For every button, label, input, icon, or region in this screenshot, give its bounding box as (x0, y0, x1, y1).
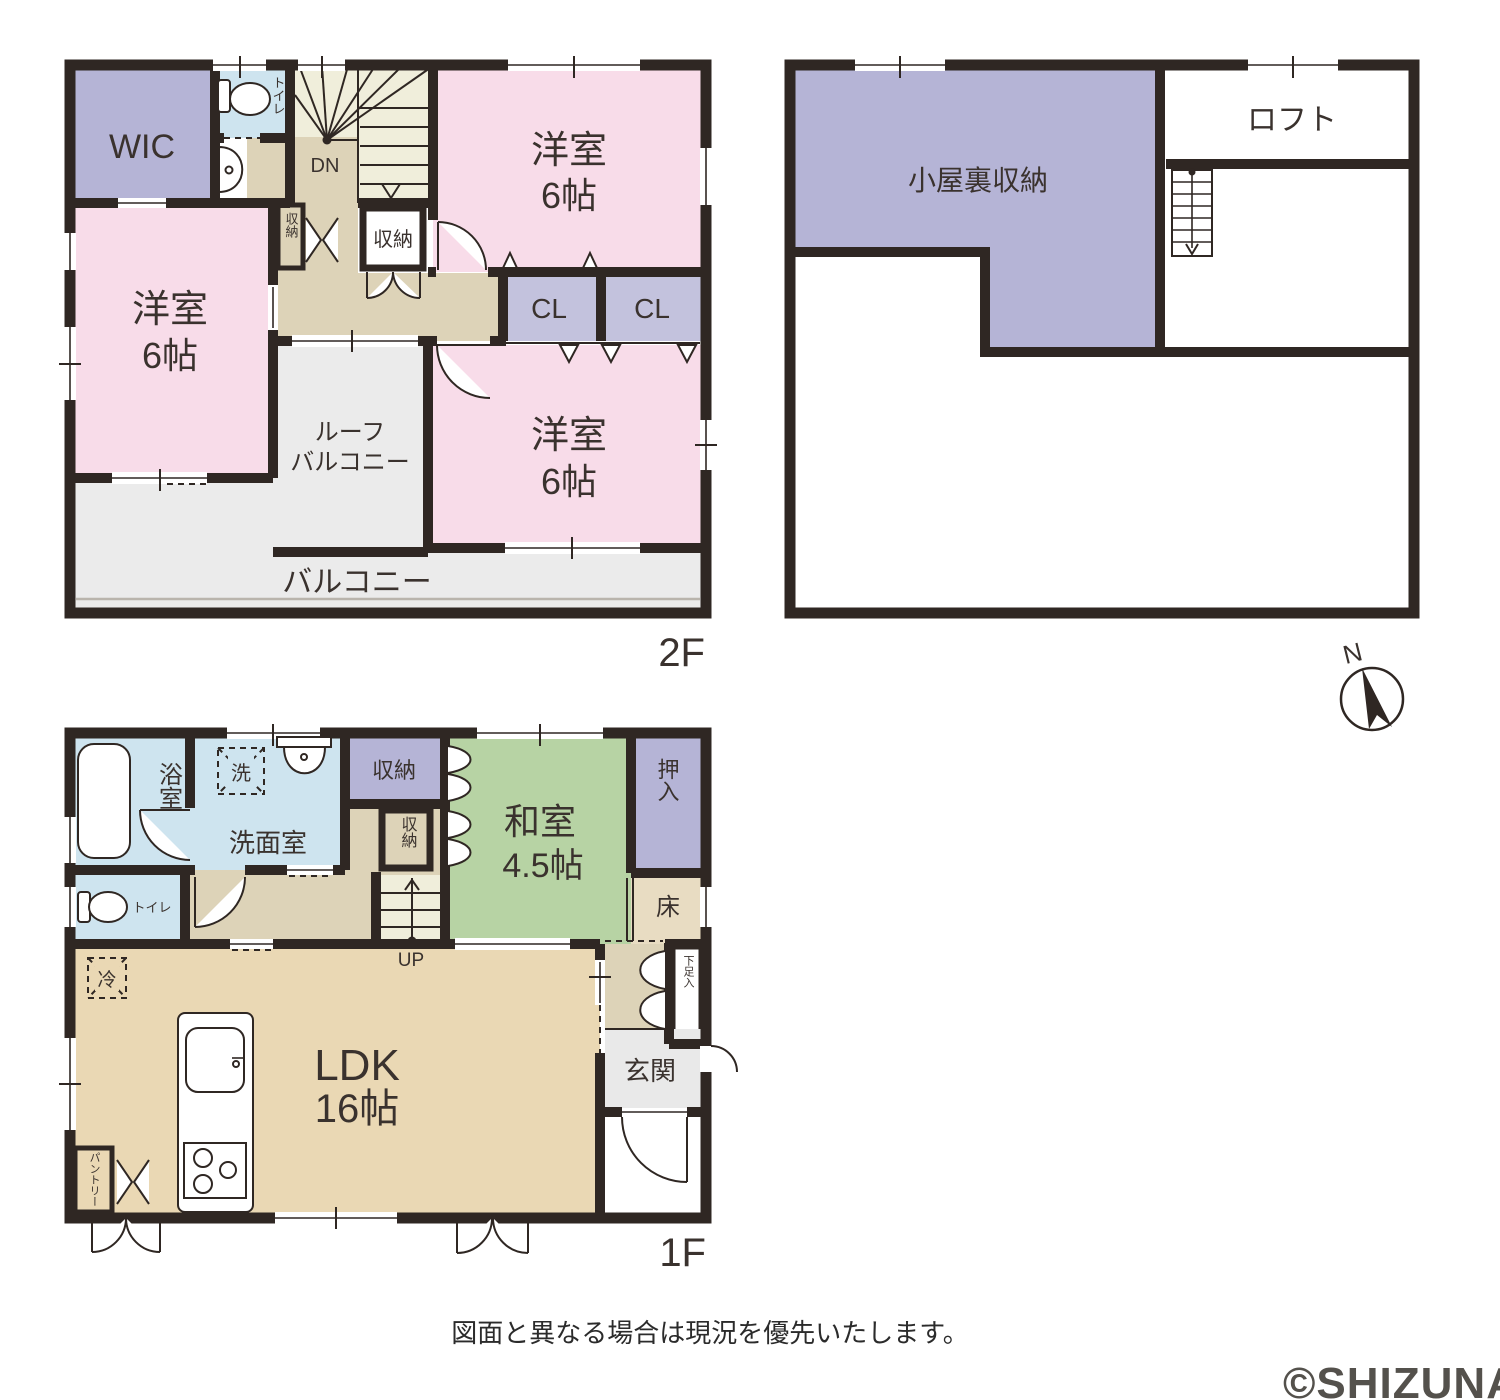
bedroom-ne-name: 洋室 (531, 130, 607, 172)
pantry-label: パントリー (88, 1152, 101, 1207)
footer-note: 図面と異なる場合は現況を優先いたします。 (451, 1318, 968, 1348)
floor1-plan: 浴室 洗 洗面室 収納 収納 トイレ UP 和室 4.5帖 押入 床 冷 LDK… (59, 724, 737, 1275)
attic-storage-label: 小屋裏収納 (908, 165, 1048, 196)
roof-balcony-line2: バルコニー (290, 449, 410, 476)
washer-label: 洗 (231, 762, 251, 785)
ldk-size: 16帖 (315, 1087, 400, 1131)
balcony-left (70, 478, 273, 613)
attic-storage-room (795, 70, 1160, 352)
bedroom-west-name: 洋室 (132, 289, 208, 331)
bath-label: 浴室 (155, 762, 182, 810)
genkan-label: 玄関 (624, 1056, 676, 1086)
compass-north-label: N (1340, 636, 1365, 670)
compass-needle (1362, 668, 1392, 729)
floor2-plan: WIC トイレ DN 収納 収納 洋室 6帖 CL CL 洋室 6帖 洋室 6帖… (59, 56, 717, 675)
closet-small-label-2f: 収納 (284, 212, 299, 239)
floorplan-page: { "colors": { "wall": "#2f2723", "room_p… (0, 0, 1500, 1400)
bedroom-ne-size: 6帖 (541, 175, 597, 216)
toilet-icon-2f (218, 80, 270, 115)
closet-label-2f: 収納 (373, 228, 413, 251)
attic-plan: 小屋裏収納 ロフト (790, 56, 1414, 613)
balcony-bottom (428, 548, 706, 613)
bedroom-se-size: 6帖 (541, 461, 597, 502)
bedroom-se-name: 洋室 (531, 415, 607, 457)
oshiire-closet (631, 733, 701, 873)
closet-lower-label: 収納 (399, 816, 418, 849)
floorplan-canvas: WIC トイレ DN 収納 収納 洋室 6帖 CL CL 洋室 6帖 洋室 6帖… (0, 0, 1500, 1400)
roof-balcony (273, 341, 428, 552)
ldk-name: LDK (314, 1041, 400, 1090)
floor1-label: 1F (659, 1231, 706, 1275)
wic-label: WIC (109, 128, 175, 166)
fridge-label: 冷 (97, 969, 116, 991)
up-label: UP (398, 950, 424, 971)
washitsu-name: 和室 (504, 801, 576, 842)
kitchen-island-icon (178, 1013, 253, 1212)
hall-1f (185, 870, 377, 944)
roof-balcony-line1: ルーフ (315, 419, 386, 446)
closet-upper-label: 収納 (372, 758, 416, 783)
bathtub-icon (78, 744, 130, 858)
floor2-label: 2F (658, 631, 705, 675)
washroom-label: 洗面室 (229, 828, 307, 858)
shoe-cabinet-label: 下足入 (682, 955, 695, 988)
toilet-label-1f: トイレ (132, 900, 171, 915)
cl-right-label: CL (634, 293, 670, 324)
bedroom-west-size: 6帖 (142, 335, 198, 376)
loft-ladder (1172, 169, 1212, 257)
cl-left-label: CL (531, 293, 567, 324)
watermark: ©SHIZUNAVI (1283, 1359, 1500, 1400)
basin-icon-2f (219, 147, 242, 192)
kitchen-sink-icon (186, 1028, 244, 1092)
compass: N (1340, 636, 1403, 730)
toko-label: 床 (656, 894, 680, 921)
toilet-label-2f: トイレ (271, 76, 286, 115)
oshiire-label: 押入 (655, 758, 680, 802)
toilet-icon-1f (78, 892, 127, 922)
balcony-label: バルコニー (282, 566, 431, 599)
loft-label: ロフト (1247, 104, 1337, 137)
dn-label: DN (311, 155, 340, 177)
washitsu-size: 4.5帖 (502, 847, 583, 885)
